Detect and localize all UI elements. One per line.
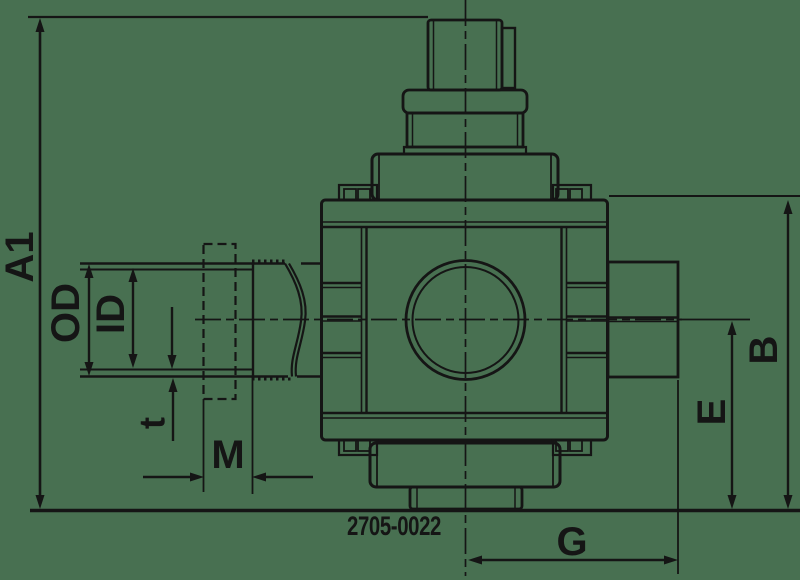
arrow-right-icon <box>664 556 678 565</box>
left-boss-steps <box>322 283 362 358</box>
stem-side-tab <box>502 28 515 88</box>
arrow-down-icon <box>728 495 737 509</box>
arrow-up-icon <box>784 200 793 214</box>
dim-label-id: ID <box>89 294 133 334</box>
right-boss-steps <box>567 283 608 358</box>
tab-inner <box>570 440 582 451</box>
tab-inner <box>358 440 370 451</box>
dim-label-b: B <box>742 336 786 365</box>
arrow-down-icon <box>784 495 793 509</box>
arrow-down-icon <box>168 355 177 369</box>
arrow-left-icon <box>252 473 266 482</box>
dim-label-t: t <box>132 417 173 429</box>
dim-label-od: OD <box>44 283 88 343</box>
valve-dimension-drawing: A1 OD ID t M G E <box>0 0 800 580</box>
dimension-a1: A1 <box>0 18 45 509</box>
arrow-up-icon <box>85 264 94 278</box>
dimension-m: M <box>143 433 313 482</box>
part-number: 2705-0022 <box>347 511 441 541</box>
arrow-up-icon <box>169 378 178 392</box>
arrow-left-icon <box>468 556 482 565</box>
arrow-down-icon <box>129 354 138 368</box>
tab-inner <box>570 189 582 200</box>
dimension-e: E <box>690 321 737 509</box>
tab-inner <box>358 189 370 200</box>
dim-label-g: G <box>556 520 587 564</box>
arrow-up-icon <box>728 321 737 335</box>
extension-lines <box>28 17 800 574</box>
arrow-right-icon <box>190 473 204 482</box>
tab-inner <box>344 440 356 451</box>
dim-label-a1: A1 <box>0 231 42 282</box>
arrow-up-icon <box>36 18 45 32</box>
drawing-canvas: A1 OD ID t M G E <box>0 0 800 580</box>
dimension-t: t <box>132 307 178 441</box>
tab-inner <box>344 189 356 200</box>
dimension-id: ID <box>89 268 138 368</box>
dimension-od: OD <box>44 264 94 376</box>
dim-label-e: E <box>690 399 734 426</box>
dimension-b: B <box>742 200 793 509</box>
dimension-g: G <box>468 520 678 565</box>
arrow-down-icon <box>36 495 45 509</box>
dim-label-m: M <box>211 433 244 477</box>
